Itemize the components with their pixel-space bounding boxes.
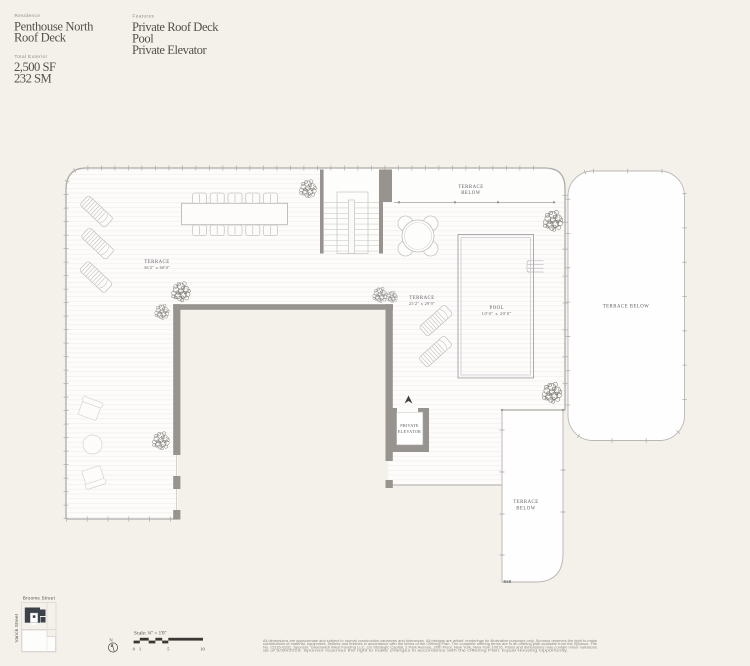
svg-text:BELOW: BELOW xyxy=(516,506,536,511)
svg-text:TERRACE: TERRACE xyxy=(513,500,538,505)
svg-text:10'0" x 20'0": 10'0" x 20'0" xyxy=(482,311,512,316)
svg-text:Private Elevator: Private Elevator xyxy=(132,43,208,57)
svg-text:Broome Street: Broome Street xyxy=(23,596,56,601)
svg-text:PRIVATE: PRIVATE xyxy=(400,423,419,428)
svg-text:Roof Deck: Roof Deck xyxy=(14,31,67,45)
svg-text:as of 5/30/2019. Sponsor reser: as of 5/30/2019. Sponsor reserves the ri… xyxy=(263,649,568,653)
svg-text:0: 0 xyxy=(133,647,136,652)
svg-text:36'2" x 60'0": 36'2" x 60'0" xyxy=(144,265,170,270)
svg-text:Varick Street: Varick Street xyxy=(14,613,19,642)
svg-text:5: 5 xyxy=(167,647,170,652)
svg-text:1: 1 xyxy=(139,647,142,652)
svg-text:232 SM: 232 SM xyxy=(14,72,52,86)
svg-text:TERRACE: TERRACE xyxy=(458,185,483,190)
svg-text:N: N xyxy=(109,638,113,643)
svg-text:Total Exterior: Total Exterior xyxy=(15,54,48,59)
svg-text:Features: Features xyxy=(133,14,155,19)
svg-text:25'2" x 29'9": 25'2" x 29'9" xyxy=(409,301,435,306)
svg-text:10: 10 xyxy=(200,647,205,652)
svg-text:Residence: Residence xyxy=(15,13,41,18)
svg-text:ELEVATOR: ELEVATOR xyxy=(398,429,421,434)
svg-text:BELOW: BELOW xyxy=(461,191,481,196)
svg-text:TERRACE BELOW: TERRACE BELOW xyxy=(603,305,650,310)
svg-text:Scale: ¼" = 1'0": Scale: ¼" = 1'0" xyxy=(134,632,167,637)
